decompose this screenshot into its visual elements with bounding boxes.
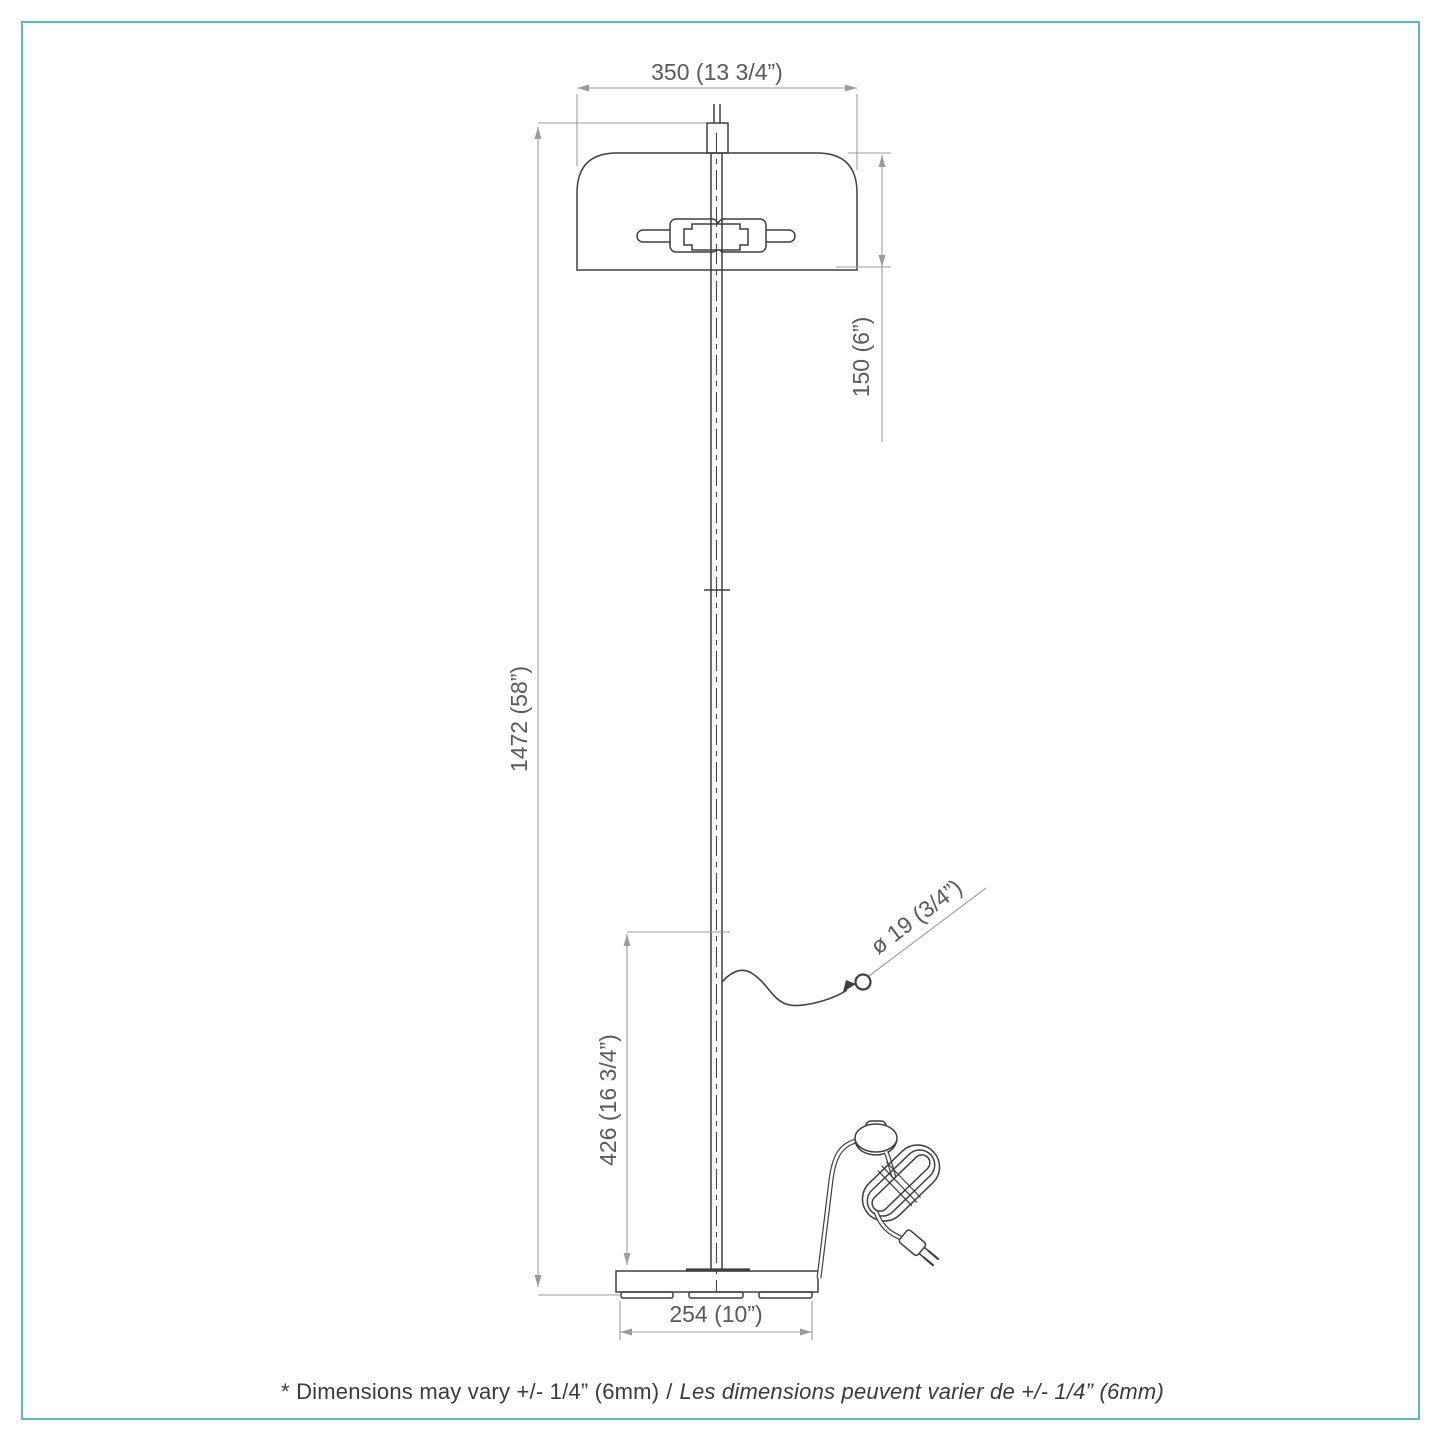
dim-cord-diameter: ø 19 (3/4”): [865, 874, 986, 976]
cord-tie: [877, 1162, 921, 1207]
base-foot: [621, 1292, 673, 1298]
power-cord: [722, 970, 847, 1005]
dim-shade-width-label: 350 (13 3/4”): [651, 59, 783, 85]
base-foot: [759, 1292, 812, 1298]
dim-shade-height: 150 (6”): [836, 153, 891, 442]
cord-coil-to-plug: [876, 1212, 901, 1238]
plug-body: [898, 1229, 927, 1257]
floor-lamp-drawing: [577, 104, 951, 1298]
stem-cap: [707, 123, 728, 153]
tolerance-note-en: * Dimensions may vary +/- 1/4” (6mm): [281, 1379, 659, 1404]
tolerance-note-fr: Les dimensions peuvent varier de +/- 1/4…: [680, 1379, 1164, 1404]
plug-prongs: [923, 1251, 939, 1266]
dim-total-height-label: 1472 (58”): [506, 666, 532, 772]
dim-cord-diameter-label: ø 19 (3/4”): [865, 874, 966, 959]
power-plug: [898, 1229, 941, 1269]
dim-base-width-label: 254 (10”): [669, 1301, 762, 1327]
foot-switch-dome: [855, 1124, 897, 1152]
technical-drawing: 350 (13 3/4”) 150 (6”) 1472 (58”) 426 (1…: [0, 0, 1445, 1445]
stem-stub: [714, 104, 720, 123]
cord-cross-section: [856, 975, 871, 990]
cord-base-to-switch: [819, 1141, 856, 1278]
foot-switch-assembly: [819, 1121, 951, 1278]
tolerance-note: * Dimensions may vary +/- 1/4” (6mm)/Les…: [0, 1379, 1445, 1405]
base-foot: [689, 1292, 743, 1298]
tolerance-note-separator: /: [666, 1379, 672, 1404]
cord-arrowhead: [843, 980, 856, 992]
dim-cord-exit-height: 426 (16 3/4”): [595, 932, 730, 1265]
dim-cord-exit-height-label: 426 (16 3/4”): [595, 1034, 621, 1166]
dim-base-width: 254 (10”): [620, 1301, 812, 1340]
dim-shade-height-label: 150 (6”): [848, 317, 874, 398]
